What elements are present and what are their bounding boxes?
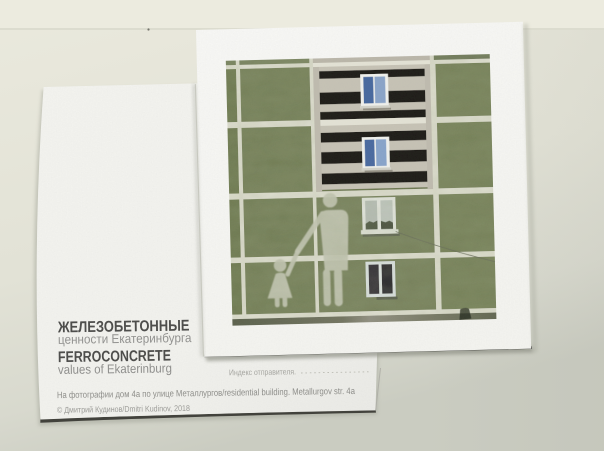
- svg-text:ценности Екатеринбурга: ценности Екатеринбурга: [58, 330, 193, 347]
- svg-text:values of Ekaterinburg: values of Ekaterinburg: [58, 360, 172, 377]
- svg-text:© Дмитрий Кудинов/Dmitri Kudin: © Дмитрий Кудинов/Dmitri Kudinov, 2018: [57, 403, 190, 415]
- svg-text:Индекс отправителя.: Индекс отправителя.: [229, 367, 296, 377]
